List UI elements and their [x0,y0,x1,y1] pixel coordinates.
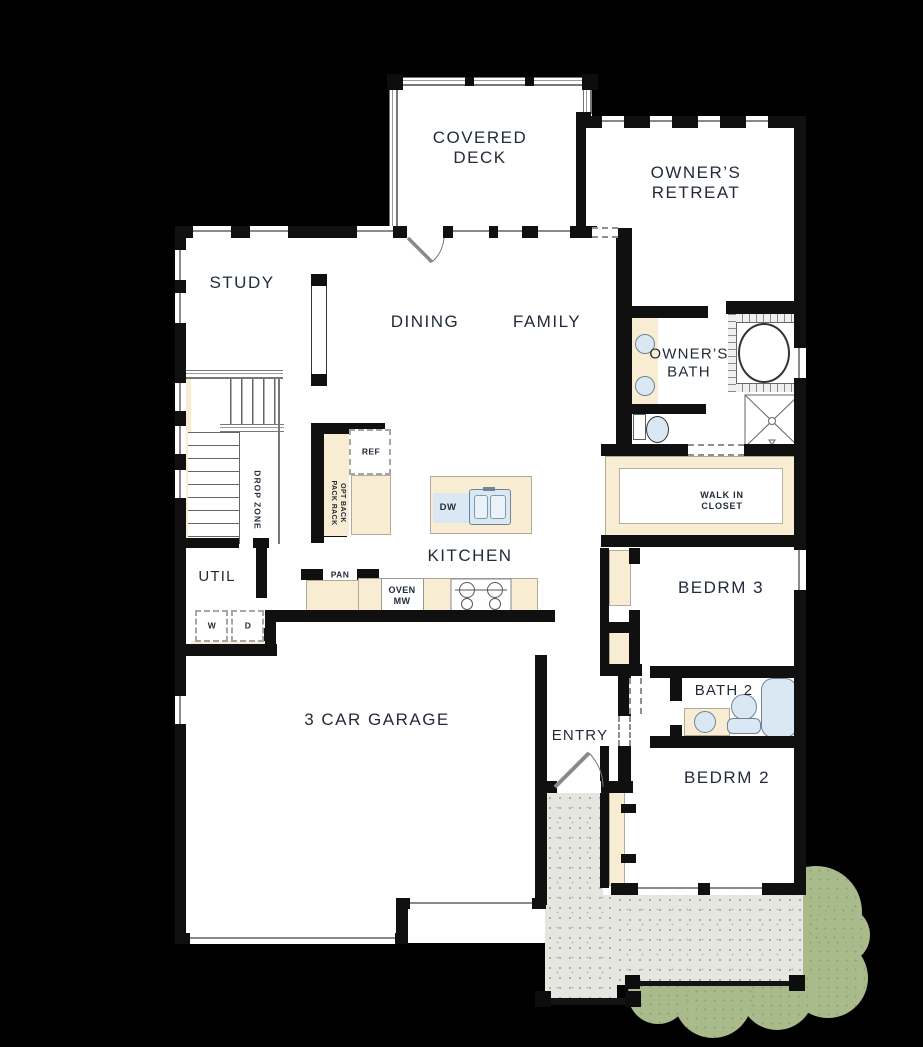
closet-opening [688,444,744,456]
owners-tub [738,323,790,383]
tub-tile [728,384,798,392]
window [650,116,672,128]
toilet-bowl [646,416,669,443]
linen-closet [609,550,631,606]
window [538,226,570,238]
wall-segment [175,226,186,943]
room-label-util: UTIL [198,568,235,586]
porch-post [625,991,641,1007]
window [357,226,393,238]
deck-rail [389,77,597,86]
bath2-toilet-base [727,718,761,734]
deck-rail [389,86,398,230]
wall-segment [600,548,609,676]
room-label-owners-retreat: OWNER’S RETREAT [646,163,746,203]
stair-treads [188,432,240,544]
porch-post [535,991,551,1007]
window [175,426,186,454]
room-label-dining: DINING [391,312,460,332]
room-label-bedrm2: BEDRM 2 [684,768,770,788]
bedrm2-closet [609,788,625,886]
porch-edge [625,981,805,986]
wall-segment [621,804,636,813]
window [193,226,231,238]
room-label-bedrm3: BEDRM 3 [678,578,764,598]
window [453,226,489,238]
window [175,250,186,280]
window [794,550,806,590]
window [602,116,624,128]
window [175,470,186,498]
stair-edge [278,378,280,544]
wall-segment [301,569,323,580]
porch-post [625,975,640,989]
wall-segment [616,404,706,414]
window [175,383,186,411]
room-label-family: FAMILY [513,312,581,332]
wall-segment [311,374,327,386]
window [698,116,720,128]
wall-segment [650,736,806,748]
label-ref: REF [362,447,380,458]
window [498,226,522,238]
room-label-kitchen: KITCHEN [427,546,512,566]
wall-segment [311,274,327,286]
room-label-study: STUDY [209,273,274,293]
porch-post [789,975,805,991]
mud-cabinet [351,475,391,535]
room-label-owners-bath: OWNER’S BATH [646,345,732,380]
label-dw: DW [440,502,457,514]
room-label-walk-in-closet: WALK IN CLOSET [694,490,750,513]
wall-segment [616,228,632,448]
shower [744,394,800,448]
faucet [483,487,495,491]
linen-closet [609,632,631,666]
pantry-shelf [306,580,360,612]
sink-basin [490,495,506,519]
deck-post [387,74,403,90]
bath2-sink [694,711,716,733]
bath2-tub [761,678,797,738]
window [638,883,698,895]
window [250,226,288,238]
wall-segment [311,423,324,543]
cooktop [450,578,512,612]
deck-post [582,74,598,90]
floor-plan: COVERED DECK OWNER’S RETREAT STUDY DININ… [0,0,923,1047]
wall-segment [726,301,806,314]
wall-segment [629,610,640,668]
label-oven-mw: OVEN MW [385,585,419,608]
stair-balusters [230,379,280,425]
deck-post [465,77,474,86]
label-washer: W [208,621,216,632]
toilet-tank [633,414,646,440]
sink-basin [474,495,488,519]
wall-segment [265,610,555,622]
window [175,293,186,323]
deck-door [404,236,446,274]
wall-segment [616,306,708,318]
tub-tile [728,314,798,322]
wall-segment [601,535,805,547]
wall-segment [535,655,547,905]
wall-segment [621,854,636,863]
garage-door [410,898,532,909]
label-opt-rack: OPT BACK PACK RACK [328,477,346,529]
label-pan: PAN [331,570,350,581]
room-label-garage: 3 CAR GARAGE [304,710,450,730]
window [794,348,806,378]
wall-segment [629,548,640,564]
stair-rail [183,370,283,379]
wall-segment [794,116,806,895]
hall-opening [618,716,631,746]
garage-door [190,933,395,944]
window [746,116,768,128]
cased-opening [592,227,618,238]
room-label-covered-deck: COVERED DECK [433,128,528,168]
porch [615,895,803,985]
wall-segment [670,677,682,701]
hall-opening [629,678,642,714]
wall-segment [175,644,277,656]
room-label-bath2: BATH 2 [695,682,754,700]
window [710,883,762,895]
window [175,696,186,724]
label-dryer: D [245,621,252,632]
stair-rail [220,424,284,432]
room-label-entry: ENTRY [552,727,609,745]
deck-rail [583,86,592,114]
label-drop-zone: DROP ZONE [252,470,263,529]
deck-post [525,77,534,86]
partial-wall [311,274,327,386]
wall-segment [256,538,267,598]
